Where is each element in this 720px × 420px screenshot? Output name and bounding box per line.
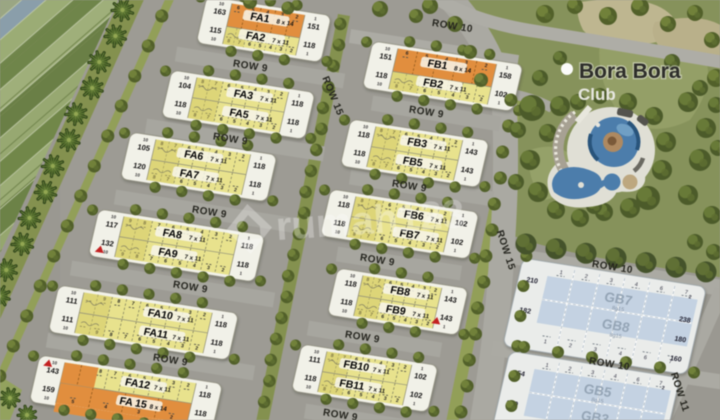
svg-text:118: 118 [174, 99, 188, 110]
svg-text:105: 105 [137, 142, 151, 153]
svg-text:118: 118 [198, 389, 212, 400]
svg-text:143: 143 [46, 365, 60, 376]
svg-text:143: 143 [443, 294, 457, 305]
svg-text:118: 118 [286, 117, 300, 128]
svg-text:111: 111 [65, 295, 79, 306]
svg-text:Bora Bora: Bora Bora [579, 60, 681, 83]
svg-text:118: 118 [375, 70, 389, 81]
svg-text:102: 102 [450, 236, 464, 247]
svg-text:111: 111 [308, 354, 322, 365]
svg-text:118: 118 [357, 129, 371, 140]
svg-text:143: 143 [460, 165, 474, 176]
svg-text:118: 118 [340, 297, 354, 308]
svg-text:102: 102 [413, 371, 427, 382]
svg-text:118: 118 [353, 148, 367, 159]
svg-text:Club: Club [578, 85, 616, 104]
svg-text:118: 118 [302, 40, 316, 51]
svg-text:118: 118 [252, 161, 266, 172]
svg-text:118: 118 [236, 259, 250, 270]
svg-text:159: 159 [41, 384, 55, 395]
svg-text:117: 117 [105, 219, 119, 230]
svg-text:115: 115 [209, 25, 223, 36]
svg-text:111: 111 [61, 314, 75, 325]
svg-text:102: 102 [409, 390, 423, 401]
svg-text:158: 158 [498, 70, 512, 81]
svg-text:118: 118 [248, 179, 262, 190]
svg-text:143: 143 [439, 313, 453, 324]
svg-text:151: 151 [306, 21, 320, 32]
svg-text:143: 143 [464, 146, 478, 157]
svg-text:132: 132 [100, 238, 114, 249]
svg-text:118: 118 [194, 408, 208, 419]
svg-text:118: 118 [290, 98, 304, 109]
svg-text:120: 120 [132, 161, 146, 172]
svg-text:118: 118 [304, 373, 318, 384]
svg-text:118: 118 [214, 319, 228, 330]
svg-text:118: 118 [210, 337, 224, 348]
svg-text:163: 163 [213, 6, 227, 17]
svg-text:151: 151 [379, 51, 393, 62]
svg-text:118: 118 [344, 278, 358, 289]
